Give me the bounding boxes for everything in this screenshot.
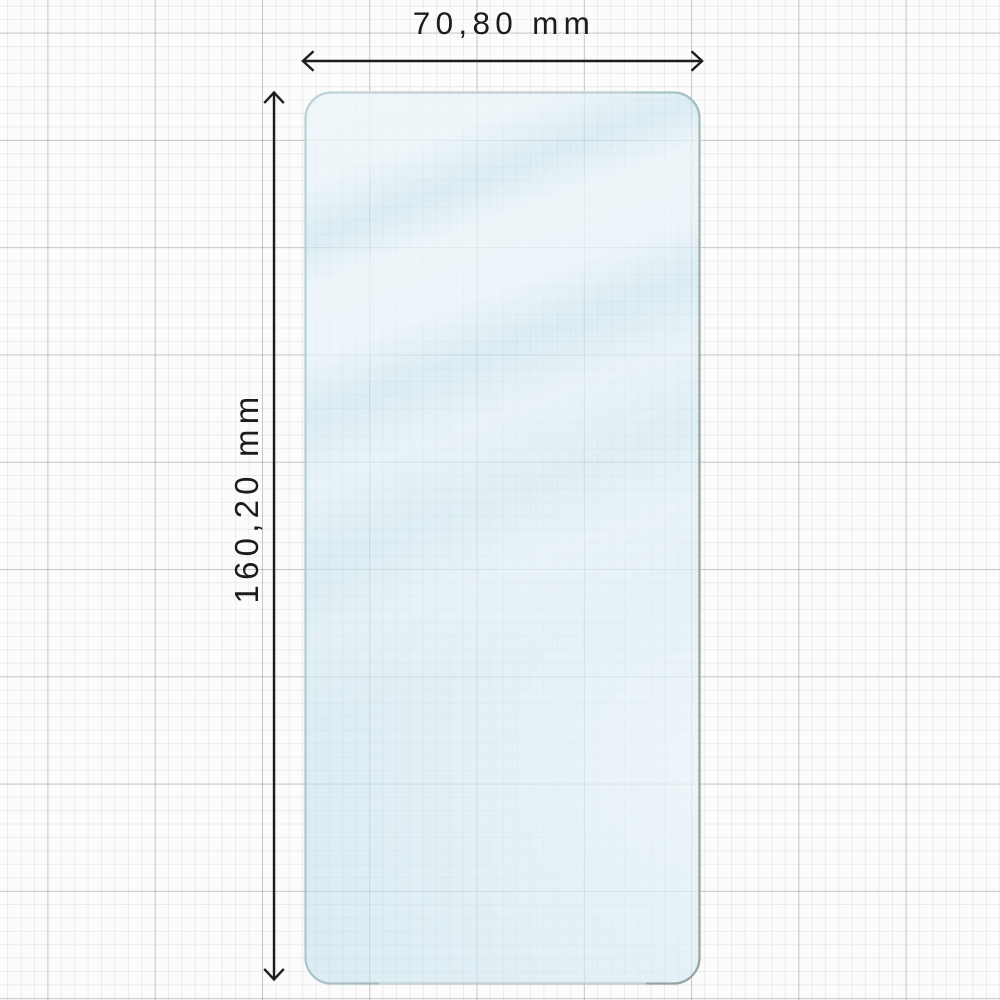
svg-text:70,80 mm: 70,80 mm bbox=[413, 5, 595, 41]
svg-text:160,20 mm: 160,20 mm bbox=[228, 392, 265, 604]
